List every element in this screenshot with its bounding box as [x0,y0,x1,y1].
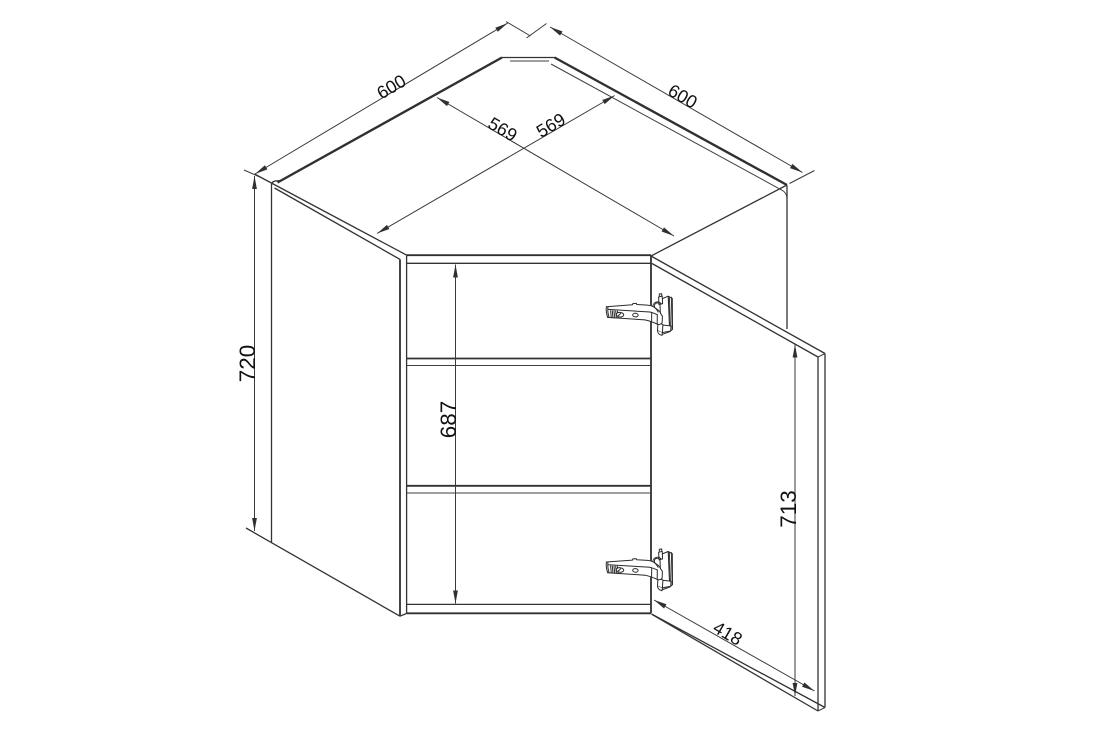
svg-text:687: 687 [436,401,461,439]
svg-text:569: 569 [485,113,521,145]
svg-text:569: 569 [533,109,569,141]
svg-text:418: 418 [710,617,746,649]
svg-text:713: 713 [776,490,801,528]
svg-text:600: 600 [665,80,701,112]
svg-text:600: 600 [373,71,409,103]
svg-text:720: 720 [235,345,260,383]
